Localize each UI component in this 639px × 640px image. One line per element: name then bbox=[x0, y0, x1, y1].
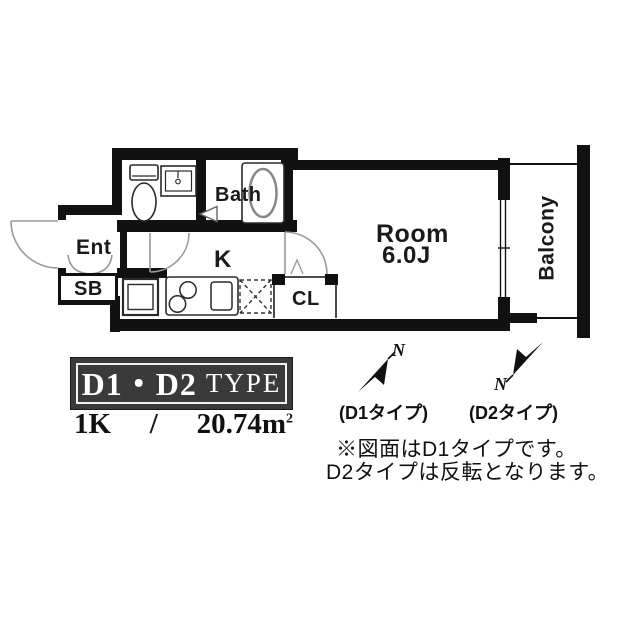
label-balcony: Balcony bbox=[537, 195, 558, 280]
label-room-size: 6.0J bbox=[382, 244, 431, 268]
type-title-box: D1・D2 TYPE bbox=[70, 357, 293, 410]
label-kitchen: K bbox=[214, 248, 232, 272]
floor-plan-page: Ent SB K CL Bath Room 6.0J Balcony N N (… bbox=[0, 0, 639, 640]
washer-space-icon bbox=[123, 279, 158, 315]
area-value: 20.74 bbox=[197, 408, 262, 440]
hall-door bbox=[150, 233, 189, 272]
d2-type-caption: (D2タイプ) bbox=[469, 404, 558, 424]
note-line-1: ※図面はD1タイプです。 bbox=[336, 438, 577, 461]
layout-separator: / bbox=[150, 410, 158, 439]
entrance-door bbox=[11, 221, 58, 268]
note-line-2: D2タイプは反転となります。 bbox=[326, 461, 609, 484]
room-window bbox=[498, 200, 510, 297]
north-arrows bbox=[358, 342, 543, 392]
d1-type-caption: (D1タイプ) bbox=[339, 404, 428, 424]
label-entrance: Ent bbox=[76, 237, 111, 258]
type-name: D1・D2 bbox=[82, 368, 197, 400]
washbasin-icon bbox=[161, 166, 196, 196]
d2-north-arrow bbox=[506, 342, 543, 382]
area-unit-exponent: 2 bbox=[286, 411, 293, 426]
d1-north-letter: N bbox=[392, 341, 405, 359]
fridge-space-icon bbox=[240, 280, 271, 313]
room-door bbox=[285, 232, 327, 274]
layout-area-line: 1K / 20.74m2 bbox=[74, 410, 293, 437]
type-title-frame: D1・D2 TYPE bbox=[76, 363, 287, 404]
d1-north-arrow bbox=[358, 352, 395, 392]
kitchen-counter-icon bbox=[166, 277, 238, 315]
label-shoebox: SB bbox=[74, 279, 103, 299]
toilet-icon bbox=[130, 165, 158, 221]
floor-plan-drawing bbox=[0, 0, 639, 640]
label-closet: CL bbox=[292, 289, 320, 309]
type-suffix: TYPE bbox=[206, 370, 282, 397]
area-value-group: 20.74m2 bbox=[197, 410, 293, 439]
label-bath: Bath bbox=[215, 185, 261, 205]
layout-type: 1K bbox=[74, 410, 111, 439]
d2-north-letter: N bbox=[494, 375, 507, 393]
area-unit: m bbox=[262, 408, 286, 440]
